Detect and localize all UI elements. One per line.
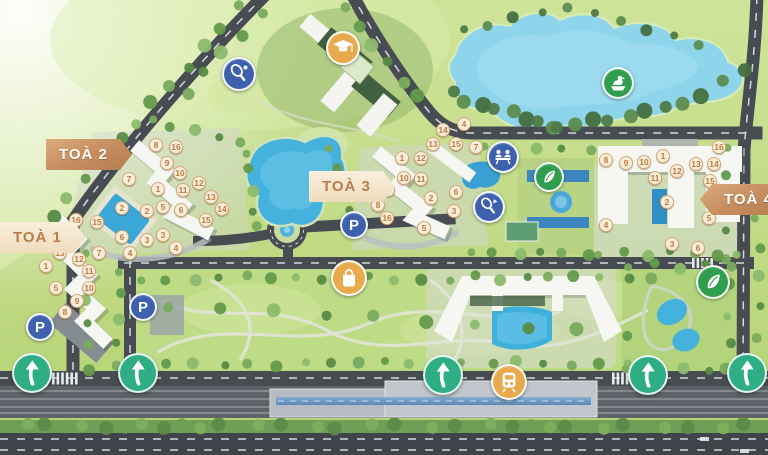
unit-marker-t4-9[interactable]: 9: [619, 156, 633, 170]
unit-marker-t1-10[interactable]: 10: [82, 281, 96, 295]
unit-marker-t2-7[interactable]: 7: [122, 172, 136, 186]
unit-marker-t1-5[interactable]: 5: [49, 281, 63, 295]
entrance-arrow-icon: [628, 355, 668, 395]
parking-icon: P: [340, 211, 368, 239]
unit-marker-t2-8[interactable]: 8: [149, 138, 163, 152]
unit-marker-t2-11[interactable]: 11: [176, 183, 190, 197]
unit-marker-t1-12[interactable]: 12: [72, 252, 86, 266]
unit-marker-t4-16[interactable]: 16: [712, 140, 726, 154]
unit-marker-t2-13[interactable]: 13: [204, 190, 218, 204]
unit-marker-t2-16[interactable]: 16: [169, 140, 183, 154]
unit-marker-t2-3[interactable]: 3: [156, 228, 170, 242]
playground-icon: [487, 141, 519, 173]
unit-marker-t1-1[interactable]: 1: [39, 259, 53, 273]
entrance-arrow-icon: [727, 353, 767, 393]
tower-label-toa-1[interactable]: TOÀ 1: [0, 222, 86, 253]
tennis-icon: [222, 57, 256, 91]
unit-marker-t4-13[interactable]: 13: [689, 157, 703, 171]
unit-marker-t3-11[interactable]: 11: [414, 172, 428, 186]
tower-label-toa-4[interactable]: TOÀ 4: [700, 184, 768, 215]
unit-marker-t1-3[interactable]: 3: [140, 233, 154, 247]
unit-marker-t3-12[interactable]: 12: [414, 151, 428, 165]
unit-marker-t4-11[interactable]: 11: [648, 171, 662, 185]
metro-icon: [491, 364, 527, 400]
parking-letter: P: [28, 315, 52, 339]
unit-marker-t2-10[interactable]: 10: [173, 166, 187, 180]
unit-marker-t3-3[interactable]: 3: [447, 204, 461, 218]
unit-marker-t1-8[interactable]: 8: [58, 305, 72, 319]
greenspace-icon: [696, 265, 730, 299]
unit-marker-t1-11[interactable]: 11: [82, 264, 96, 278]
unit-marker-t2-15[interactable]: 15: [199, 213, 213, 227]
unit-marker-t3-6[interactable]: 6: [449, 185, 463, 199]
unit-marker-t2-5[interactable]: 5: [156, 200, 170, 214]
entrance-arrow-icon: [118, 353, 158, 393]
unit-marker-t3-2[interactable]: 2: [424, 191, 438, 205]
shopping-icon: [331, 260, 367, 296]
unit-marker-t4-6[interactable]: 6: [691, 241, 705, 255]
unit-marker-t2-2[interactable]: 2: [140, 204, 154, 218]
greenspace-icon: [534, 162, 564, 192]
parking-icon: P: [129, 293, 157, 321]
unit-marker-t3-4[interactable]: 4: [457, 117, 471, 131]
unit-marker-t2-6[interactable]: 6: [174, 203, 188, 217]
unit-marker-t2-12[interactable]: 12: [192, 176, 206, 190]
unit-marker-t1-15[interactable]: 15: [90, 215, 104, 229]
unit-marker-t4-4[interactable]: 4: [599, 218, 613, 232]
tower-label-text: TOÀ 4: [724, 191, 768, 208]
unit-marker-t3-10[interactable]: 10: [397, 171, 411, 185]
unit-marker-t4-12[interactable]: 12: [670, 164, 684, 178]
parking-letter: P: [342, 213, 366, 237]
tower-label-toa-2[interactable]: TOÀ 2: [46, 139, 132, 170]
unit-marker-t4-10[interactable]: 10: [637, 155, 651, 169]
unit-marker-t1-2[interactable]: 2: [115, 201, 129, 215]
tower-label-text: TOÀ 3: [322, 178, 371, 195]
unit-marker-t1-7[interactable]: 7: [92, 246, 106, 260]
boating-icon: [602, 67, 634, 99]
unit-marker-t4-2[interactable]: 2: [660, 195, 674, 209]
badminton-icon: [473, 191, 505, 223]
unit-marker-t2-4[interactable]: 4: [169, 241, 183, 255]
unit-marker-t2-9[interactable]: 9: [160, 156, 174, 170]
unit-marker-t1-4[interactable]: 4: [123, 246, 137, 260]
map-overlay: TOÀ 1 TOÀ 2 TOÀ 3 TOÀ 4 1234567891011121…: [0, 0, 768, 455]
unit-marker-t4-3[interactable]: 3: [665, 237, 679, 251]
entrance-arrow-icon: [12, 353, 52, 393]
unit-marker-t3-16[interactable]: 16: [380, 211, 394, 225]
unit-marker-t3-13[interactable]: 13: [426, 137, 440, 151]
school-icon: [326, 31, 360, 65]
unit-marker-t1-6[interactable]: 6: [115, 230, 129, 244]
unit-marker-t3-1[interactable]: 1: [395, 151, 409, 165]
tower-label-text: TOÀ 2: [59, 146, 108, 163]
unit-marker-t4-8[interactable]: 8: [599, 153, 613, 167]
unit-marker-t3-15[interactable]: 15: [449, 137, 463, 151]
unit-marker-t1-9[interactable]: 9: [70, 294, 84, 308]
entrance-arrow-icon: [423, 355, 463, 395]
tower-label-toa-3[interactable]: TOÀ 3: [309, 171, 395, 202]
unit-marker-t4-14[interactable]: 14: [707, 157, 721, 171]
parking-icon: P: [26, 313, 54, 341]
masterplan-map: TOÀ 1 TOÀ 2 TOÀ 3 TOÀ 4 1234567891011121…: [0, 0, 768, 455]
unit-marker-t4-1[interactable]: 1: [656, 149, 670, 163]
unit-marker-t3-7[interactable]: 7: [469, 140, 483, 154]
unit-marker-t2-14[interactable]: 14: [215, 202, 229, 216]
tower-label-text: TOÀ 1: [13, 229, 62, 246]
parking-letter: P: [131, 295, 155, 319]
unit-marker-t3-5[interactable]: 5: [417, 221, 431, 235]
unit-marker-t3-14[interactable]: 14: [436, 123, 450, 137]
unit-marker-t2-1[interactable]: 1: [151, 182, 165, 196]
